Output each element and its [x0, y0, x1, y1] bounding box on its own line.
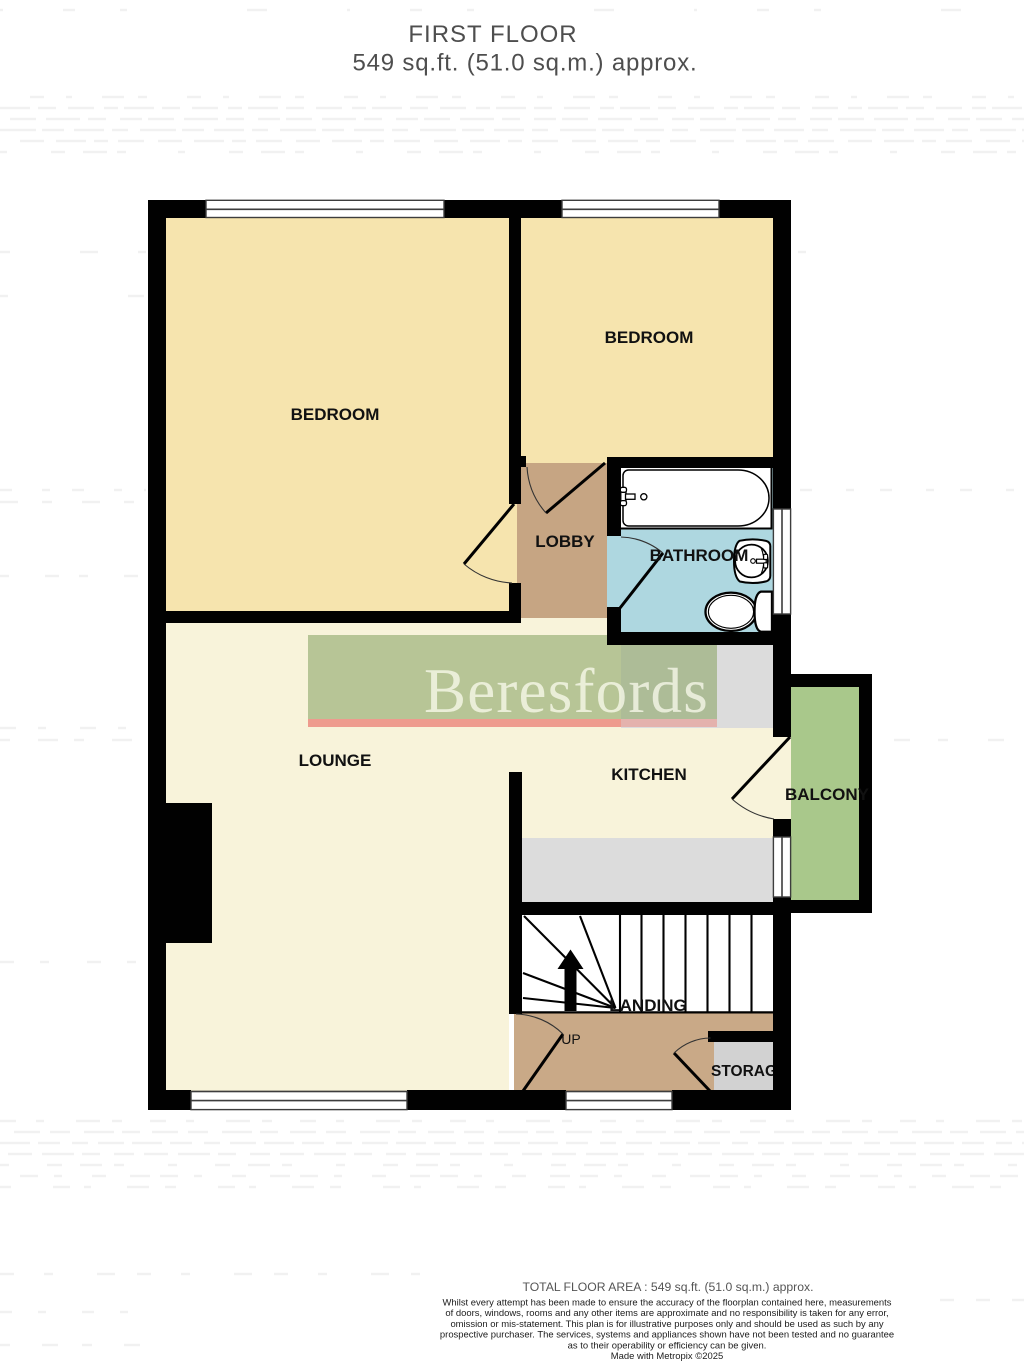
svg-text:BATHROOM: BATHROOM: [650, 546, 749, 565]
svg-text:prospective purchaser. The ser: prospective purchaser. The services, sys…: [440, 1330, 894, 1341]
svg-text:UP: UP: [561, 1031, 580, 1047]
svg-text:LANDING: LANDING: [609, 996, 686, 1015]
svg-text:as to their operability or eff: as to their operability or efficiency ca…: [568, 1340, 767, 1351]
svg-text:Made with Metropix ©2025: Made with Metropix ©2025: [611, 1351, 723, 1362]
svg-text:LOBBY: LOBBY: [535, 532, 595, 551]
svg-text:LOUNGE: LOUNGE: [299, 751, 372, 770]
svg-text:BEDROOM: BEDROOM: [605, 328, 694, 347]
svg-text:549 sq.ft. (51.0 sq.m.) approx: 549 sq.ft. (51.0 sq.m.) approx.: [353, 50, 698, 77]
svg-text:TOTAL FLOOR AREA : 549 sq.ft.: TOTAL FLOOR AREA : 549 sq.ft. (51.0 sq.m…: [522, 1280, 813, 1294]
svg-text:Beresfords: Beresfords: [424, 656, 709, 726]
svg-text:of doors, windows, rooms and a: of doors, windows, rooms and any other i…: [445, 1308, 888, 1319]
svg-text:omission or mis-statement. Thi: omission or mis-statement. This plan is …: [450, 1319, 883, 1330]
svg-text:FIRST FLOOR: FIRST FLOOR: [408, 21, 577, 48]
svg-text:BEDROOM: BEDROOM: [291, 405, 380, 424]
svg-text:KITCHEN: KITCHEN: [611, 765, 687, 784]
svg-text:Whilst every attempt has been: Whilst every attempt has been made to en…: [442, 1298, 891, 1309]
svg-text:BALCONY: BALCONY: [785, 785, 870, 804]
